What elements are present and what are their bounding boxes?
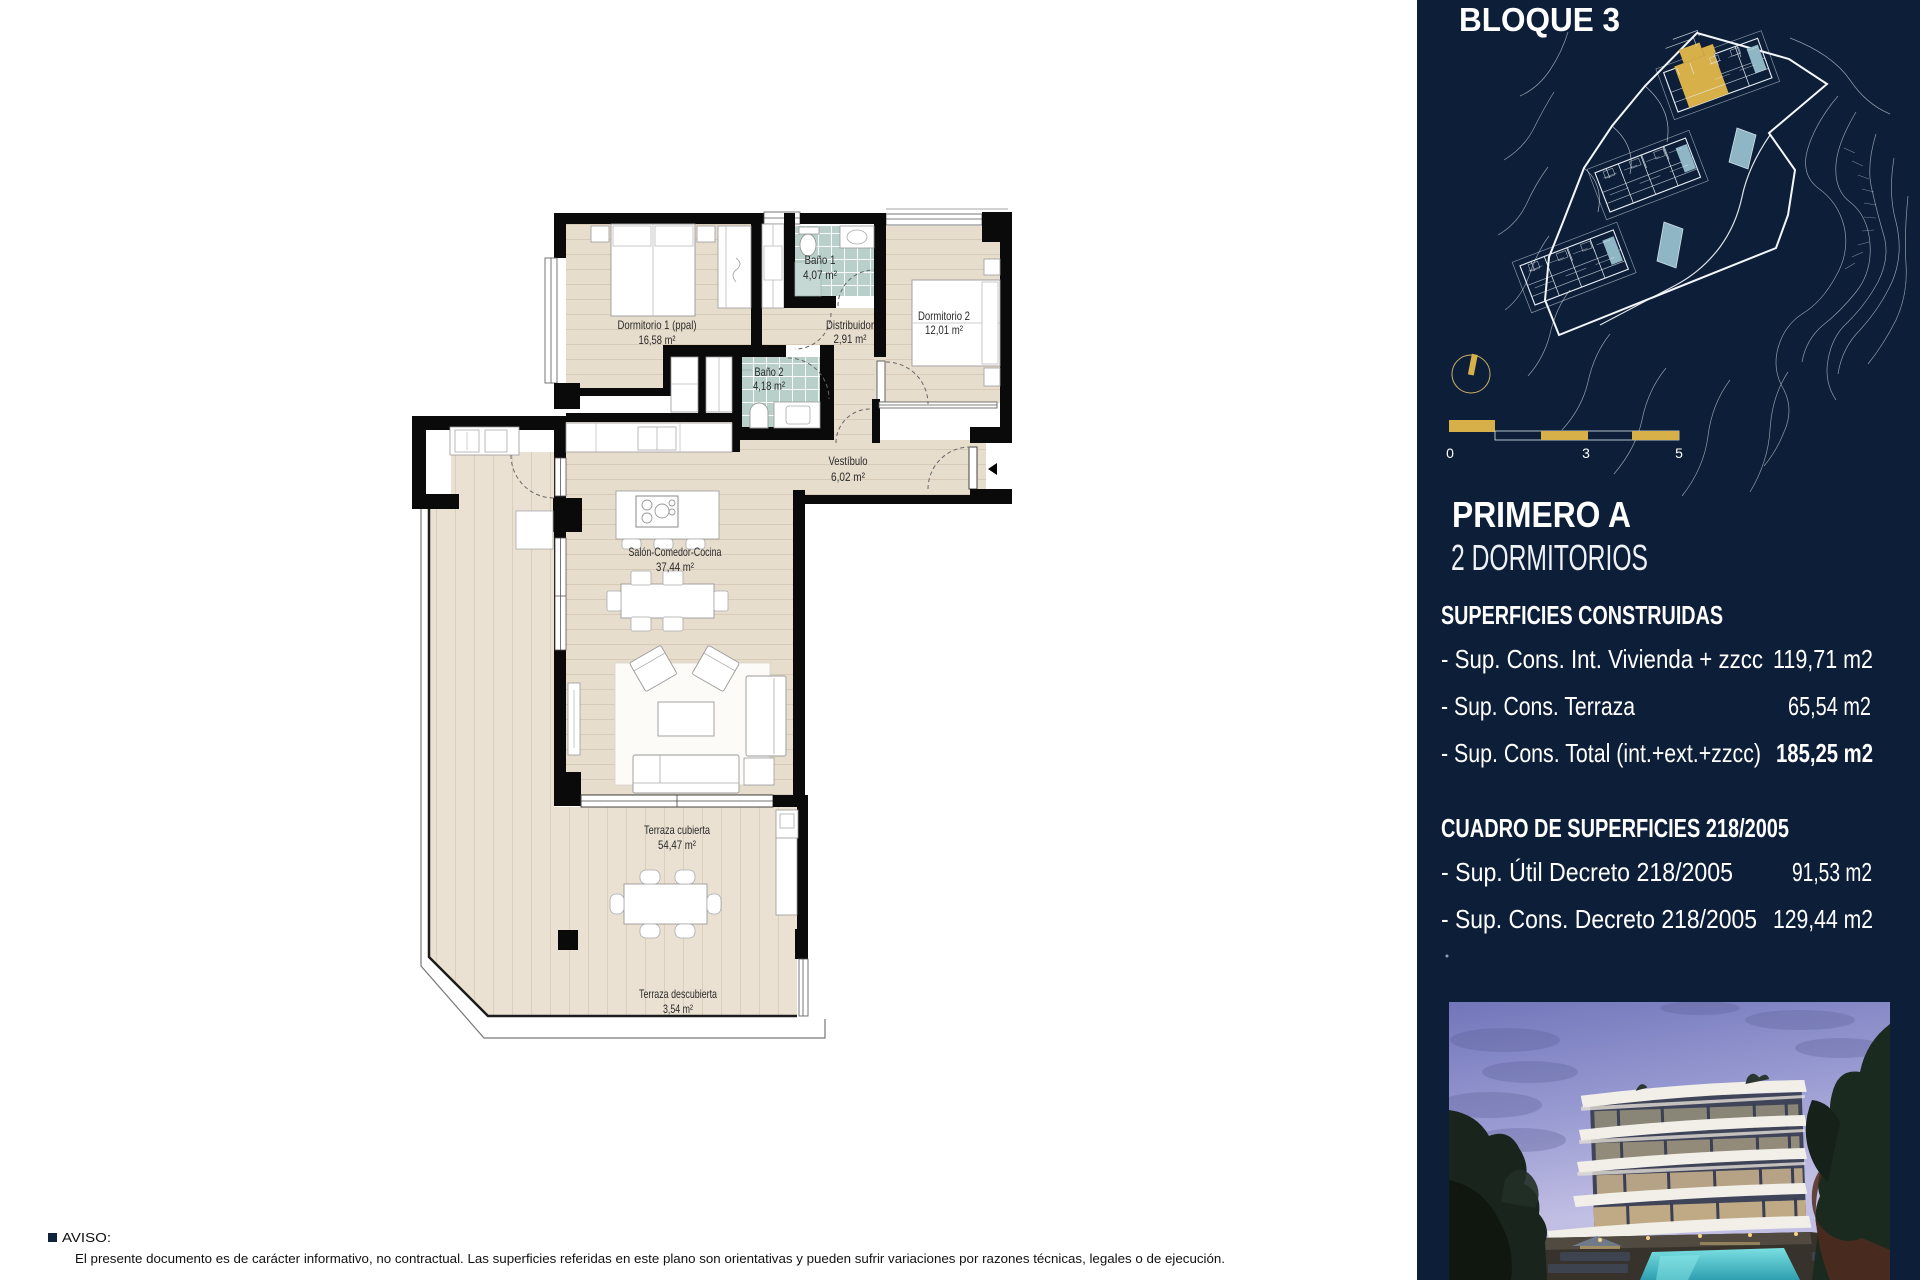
svg-text:PRIMERO A: PRIMERO A <box>1452 494 1631 535</box>
svg-text:Baño 2: Baño 2 <box>755 365 784 379</box>
svg-text:Dormitorio 1 (ppal): Dormitorio 1 (ppal) <box>618 318 697 332</box>
svg-text:16,58 m²: 16,58 m² <box>639 333 676 347</box>
svg-text:Vestíbulo: Vestíbulo <box>829 454 868 468</box>
svg-text:- Sup. Cons. Decreto 218/2005: - Sup. Cons. Decreto 218/2005 <box>1441 904 1757 934</box>
svg-text:Distribuidor: Distribuidor <box>826 318 874 332</box>
svg-text:- Sup. Cons. Terraza: - Sup. Cons. Terraza <box>1441 691 1635 721</box>
svg-text:SUPERFICIES CONSTRUIDAS: SUPERFICIES CONSTRUIDAS <box>1441 600 1723 630</box>
svg-text:4,07 m²: 4,07 m² <box>803 268 837 282</box>
svg-text:El presente documento es de ca: El presente documento es de carácter inf… <box>75 1251 1225 1266</box>
svg-text:6,02 m²: 6,02 m² <box>831 470 865 484</box>
svg-text:Dormitorio 2: Dormitorio 2 <box>918 309 970 323</box>
svg-text:12,01 m²: 12,01 m² <box>925 323 963 337</box>
svg-text:54,47 m²: 54,47 m² <box>658 838 696 852</box>
svg-text:Terraza cubierta: Terraza cubierta <box>644 823 710 837</box>
svg-text:Terraza descubierta: Terraza descubierta <box>639 987 717 1001</box>
svg-text:0: 0 <box>1446 445 1454 461</box>
svg-text:- Sup. Cons. Total (int.+ext.+: - Sup. Cons. Total (int.+ext.+zzcc) <box>1441 738 1761 768</box>
svg-text:91,53 m2: 91,53 m2 <box>1792 857 1872 887</box>
svg-text:2 DORMITORIOS: 2 DORMITORIOS <box>1451 537 1648 578</box>
svg-text:129,44 m2: 129,44 m2 <box>1773 904 1873 934</box>
svg-text:3,54 m²: 3,54 m² <box>663 1002 693 1016</box>
svg-text:CUADRO DE SUPERFICIES 218/2005: CUADRO DE SUPERFICIES 218/2005 <box>1441 813 1789 843</box>
svg-text:37,44 m²: 37,44 m² <box>656 560 694 574</box>
svg-text:Salón-Comedor-Cocina: Salón-Comedor-Cocina <box>629 545 722 559</box>
svg-text:BLOQUE 3: BLOQUE 3 <box>1459 1 1620 38</box>
svg-text:2,91 m²: 2,91 m² <box>834 332 867 346</box>
svg-text:65,54 m2: 65,54 m2 <box>1788 691 1871 721</box>
svg-text:Baño 1: Baño 1 <box>805 253 836 267</box>
svg-text:119,71 m2: 119,71 m2 <box>1773 644 1873 674</box>
svg-text:3: 3 <box>1582 445 1590 461</box>
svg-text:4,18 m²: 4,18 m² <box>753 379 785 393</box>
svg-text:AVISO:: AVISO: <box>62 1230 111 1245</box>
svg-text:- Sup. Cons. Int. Vivienda + z: - Sup. Cons. Int. Vivienda + zzcc <box>1441 644 1763 674</box>
svg-text:5: 5 <box>1675 445 1683 461</box>
svg-text:185,25 m2: 185,25 m2 <box>1776 738 1873 768</box>
svg-text:- Sup. Útil Decreto 218/2005: - Sup. Útil Decreto 218/2005 <box>1441 857 1733 887</box>
